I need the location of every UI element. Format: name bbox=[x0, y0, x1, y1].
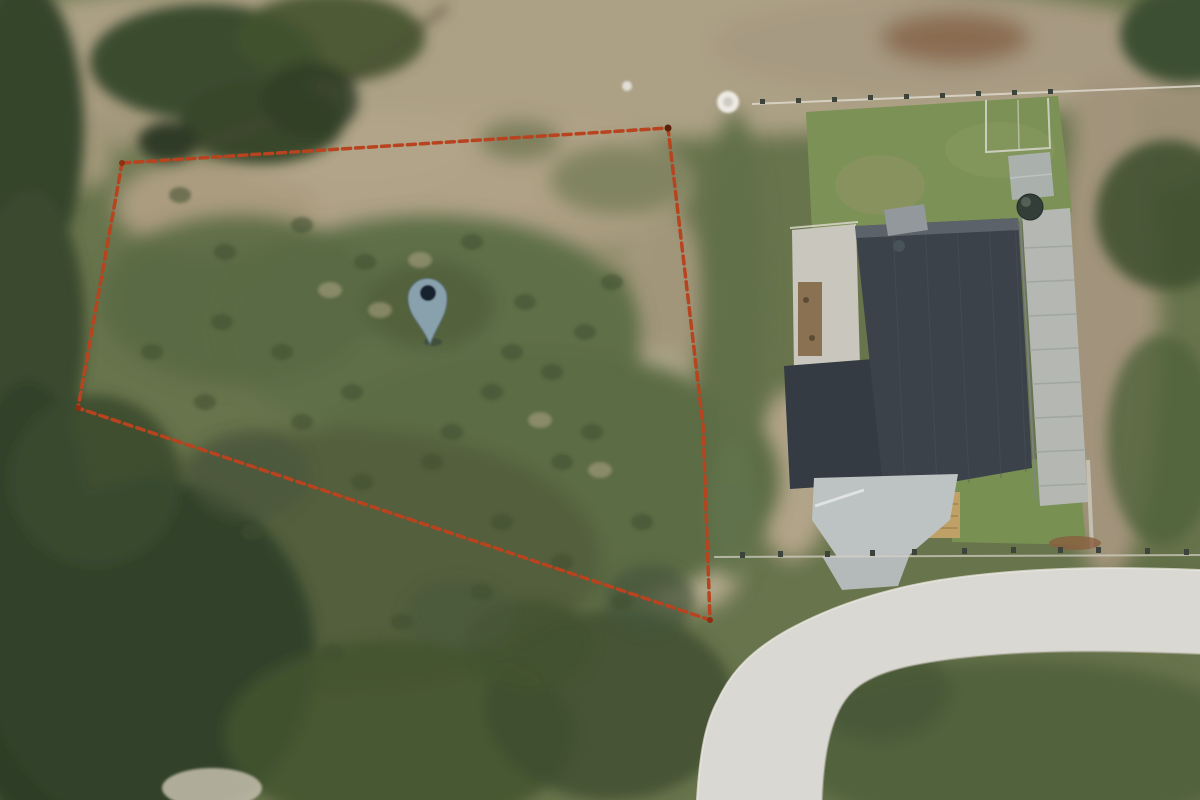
fence-post bbox=[1012, 90, 1017, 95]
planter-dot bbox=[803, 297, 809, 303]
fence-post bbox=[912, 549, 917, 555]
bush-dot bbox=[461, 234, 483, 250]
map-pin-hole[interactable] bbox=[420, 285, 436, 301]
boundary-corner-point bbox=[119, 160, 125, 166]
tree-shadow bbox=[262, 62, 358, 138]
pin-shadow bbox=[424, 338, 442, 346]
fence-post bbox=[904, 94, 909, 99]
bush-dot bbox=[351, 474, 373, 490]
scrub-grass bbox=[550, 145, 690, 215]
bush-dot bbox=[631, 514, 653, 530]
fence-post bbox=[796, 98, 801, 103]
bush-dot bbox=[541, 364, 563, 380]
water-tank-highlight bbox=[1021, 197, 1031, 207]
tree-mass bbox=[138, 122, 198, 162]
bush-dot bbox=[551, 454, 573, 470]
fence-post bbox=[1145, 548, 1150, 554]
bush-dot bbox=[321, 644, 343, 660]
bush-dot bbox=[471, 584, 493, 600]
bush-dot bbox=[291, 217, 313, 233]
manhole-circle-center bbox=[723, 97, 733, 107]
courtyard-wall-inner bbox=[1018, 100, 1019, 150]
satellite-imagery-canvas[interactable] bbox=[0, 0, 1200, 800]
fence-post bbox=[962, 548, 967, 554]
boundary-corner-point bbox=[707, 617, 713, 623]
bush-dot bbox=[291, 414, 313, 430]
fence-post bbox=[868, 95, 873, 100]
scrub-grass bbox=[707, 440, 759, 580]
bush-dot bbox=[514, 294, 536, 310]
fence-post bbox=[1096, 547, 1101, 553]
bush-dot bbox=[581, 424, 603, 440]
bush-dot bbox=[271, 344, 293, 360]
bush-dot bbox=[421, 454, 443, 470]
bush-dot bbox=[241, 524, 263, 540]
building-layer bbox=[784, 96, 1101, 590]
bush-dot bbox=[214, 244, 236, 260]
fence-post bbox=[778, 551, 783, 557]
dirt-dot bbox=[368, 302, 392, 318]
roof-vent bbox=[893, 240, 905, 252]
fence-post bbox=[832, 97, 837, 102]
dead-brush-patch bbox=[880, 12, 1030, 64]
hedge-strip bbox=[1049, 536, 1101, 550]
fence-post bbox=[740, 552, 745, 558]
scrub-mass bbox=[190, 430, 310, 520]
bush-dot bbox=[481, 384, 503, 400]
boundary-corner-point bbox=[75, 405, 81, 411]
bush-dot bbox=[211, 314, 233, 330]
planter-dot bbox=[809, 335, 815, 341]
bush-dot bbox=[501, 344, 523, 360]
bush-dot bbox=[169, 187, 191, 203]
dirt-dot bbox=[588, 462, 612, 478]
scrub-grass bbox=[100, 215, 380, 385]
bush-dot bbox=[141, 344, 163, 360]
boundary-corner-point bbox=[665, 125, 672, 132]
fence-post bbox=[870, 550, 875, 556]
aerial-map-viewport[interactable] bbox=[0, 0, 1200, 800]
bush-dot bbox=[391, 614, 413, 630]
fence-post bbox=[1184, 549, 1189, 555]
fence-post bbox=[1011, 547, 1016, 553]
dirt-dot bbox=[528, 412, 552, 428]
fence-post bbox=[940, 93, 945, 98]
main-roof bbox=[855, 218, 1032, 494]
bush-dot bbox=[611, 594, 633, 610]
planter-box bbox=[798, 282, 822, 356]
bush-dot bbox=[194, 394, 216, 410]
tree-mass bbox=[10, 395, 180, 565]
bush-dot bbox=[441, 424, 463, 440]
bush-dot bbox=[491, 514, 513, 530]
white-debris bbox=[622, 81, 632, 91]
fence-post bbox=[1058, 547, 1063, 553]
water-tank bbox=[1017, 194, 1043, 220]
fence-post bbox=[825, 551, 830, 557]
fence-post bbox=[760, 99, 765, 104]
fence-post bbox=[976, 91, 981, 96]
scrub-grass bbox=[705, 110, 765, 490]
bush-dot bbox=[601, 274, 623, 290]
scrub-mass bbox=[405, 580, 515, 650]
dirt-dot bbox=[318, 282, 342, 298]
fence-post bbox=[1048, 89, 1053, 94]
bush-dot bbox=[574, 324, 596, 340]
dirt-dot bbox=[408, 252, 432, 268]
bush-dot bbox=[341, 384, 363, 400]
bush-dot bbox=[354, 254, 376, 270]
